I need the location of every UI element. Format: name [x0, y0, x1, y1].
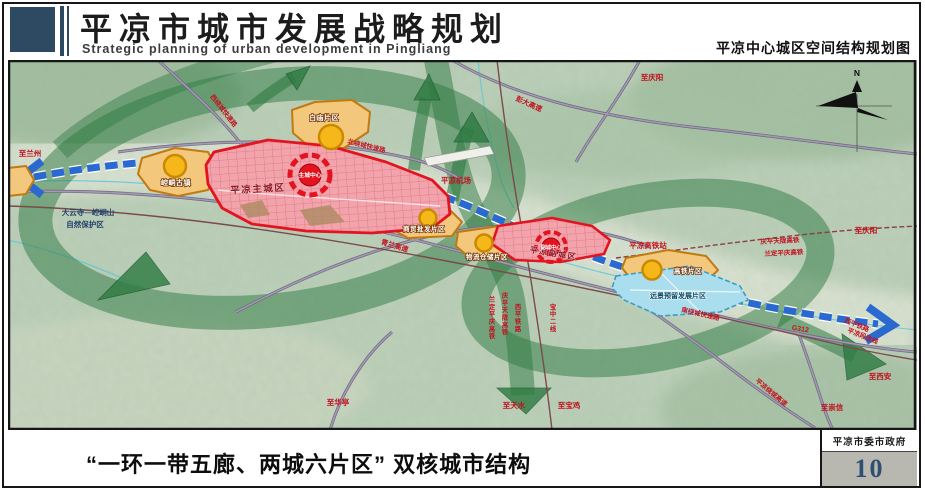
zone-label-logistics: 物流仓储片区 [466, 252, 508, 261]
planning-map: 平凉主城区 平凉副城区 主城中心 副城中心 白庙片区 崆峒古镇 商贸批发片区 物… [8, 60, 917, 430]
nature-reserve-label-2: 自然保护区 [66, 219, 104, 229]
dest-label-chongxin: 至崇信 [821, 402, 844, 412]
core-trade [420, 210, 437, 227]
structure-caption: “一环一带五廊、两城六片区” 双核城市结构 [86, 447, 531, 479]
rail-label-ldpq-v: 兰定平庆高铁 [488, 295, 496, 340]
sheet-title: 平凉中心城区空间结构规划图 [716, 38, 911, 58]
zone-label-reserve: 远景预留发展片区 [650, 291, 706, 300]
rail-label-xiping-v: 西平铁路 [514, 303, 522, 333]
core-hsr [643, 261, 662, 280]
rail-label-baozhong-v: 宝中二线 [549, 302, 556, 333]
dest-label-huating: 至华亭 [327, 397, 350, 407]
core-baimiao [319, 125, 343, 149]
dest-label-tianshui: 至天水 [503, 400, 526, 410]
agency-label: 平凉市委市政府 [822, 430, 917, 452]
zone-label-hsr-district: 高铁片区 [674, 266, 702, 275]
nature-reserve-label-1: 大云寺—崆峒山 [62, 207, 115, 217]
zone-label-ancient-town: 崆峒古镇 [161, 178, 191, 187]
zone-label-trade: 商贸批发片区 [403, 224, 445, 233]
dest-label-xian: 至西安 [869, 371, 892, 381]
core-ancient-town [164, 155, 186, 177]
dest-label-qingyang-e: 至庆阳 [855, 225, 878, 235]
dest-label-qingyang-n: 至庆阳 [641, 72, 664, 82]
core-logistics [476, 235, 493, 252]
center-label-main: 主城中心 [298, 171, 321, 179]
brand-bar [60, 6, 64, 56]
dest-label-lanzhou: 至兰州 [19, 148, 42, 158]
brand-bar [67, 6, 69, 56]
dest-label-baoji: 至宝鸡 [558, 400, 581, 410]
rail-label-qptl-v: 庆平天陇高铁 [501, 291, 509, 336]
plan-sheet: 平凉市城市发展战略规划 Strategic planning of urban … [0, 0, 925, 500]
zone-label-baimiao: 白庙片区 [309, 113, 339, 122]
page-number: 10 [822, 452, 917, 486]
brand-square [10, 7, 55, 52]
page-title-english: Strategic planning of urban development … [82, 42, 451, 56]
center-label-sub: 副城中心 [541, 243, 563, 251]
airport-label: 平凉机场 [441, 175, 471, 185]
hsr-station-label: 平凉高铁站 [629, 240, 667, 250]
compass-north-label: N [854, 68, 860, 78]
